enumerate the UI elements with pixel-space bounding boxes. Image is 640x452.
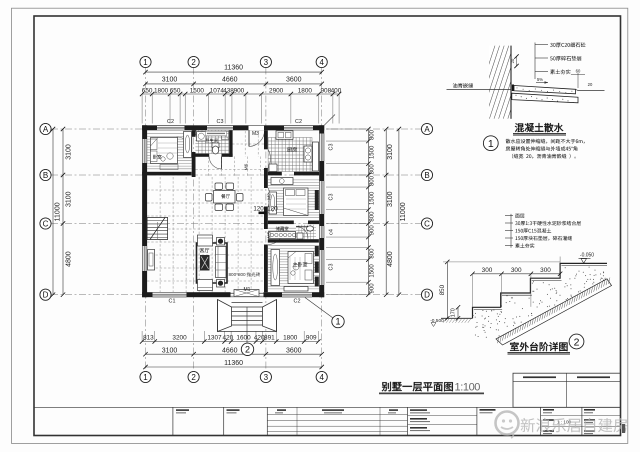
svg-text:4660: 4660 bbox=[222, 76, 238, 83]
svg-text:1: 1 bbox=[488, 138, 494, 150]
svg-text:1074: 1074 bbox=[210, 87, 225, 94]
svg-text:120: 120 bbox=[267, 206, 278, 213]
svg-text:800: 800 bbox=[370, 211, 376, 222]
svg-text:C: C bbox=[424, 219, 430, 228]
svg-text:A: A bbox=[424, 125, 430, 134]
svg-text:C2: C2 bbox=[295, 119, 302, 125]
svg-text:800*800: 800*800 bbox=[229, 272, 247, 277]
svg-text:120: 120 bbox=[253, 206, 264, 213]
svg-text:3: 3 bbox=[264, 373, 269, 382]
svg-text:909: 909 bbox=[306, 335, 317, 342]
svg-text:5%: 5% bbox=[537, 77, 543, 82]
svg-text:2900: 2900 bbox=[269, 87, 284, 94]
svg-text:1307: 1307 bbox=[207, 335, 222, 342]
svg-text:4800: 4800 bbox=[66, 251, 73, 267]
svg-text:M6: M6 bbox=[244, 163, 250, 170]
svg-text:C2: C2 bbox=[167, 119, 174, 125]
svg-text:-0.500: -0.500 bbox=[430, 318, 444, 324]
svg-text:3100: 3100 bbox=[66, 191, 73, 207]
svg-text:1600: 1600 bbox=[236, 335, 251, 342]
svg-text:900: 900 bbox=[370, 225, 376, 236]
svg-text:1800: 1800 bbox=[154, 87, 169, 94]
svg-text:3100: 3100 bbox=[162, 76, 178, 83]
svg-text:D: D bbox=[424, 291, 430, 300]
svg-text:1800: 1800 bbox=[298, 87, 313, 94]
svg-text:900: 900 bbox=[234, 87, 245, 94]
svg-text:891: 891 bbox=[264, 335, 275, 342]
svg-text:C1: C1 bbox=[169, 299, 176, 305]
svg-text:300: 300 bbox=[482, 267, 493, 274]
svg-text:3600: 3600 bbox=[286, 347, 302, 354]
svg-text:3100: 3100 bbox=[387, 191, 394, 207]
svg-text:1500: 1500 bbox=[370, 264, 376, 278]
svg-text:4800: 4800 bbox=[387, 251, 394, 267]
svg-text:60: 60 bbox=[576, 69, 581, 74]
svg-text:800: 800 bbox=[370, 248, 376, 259]
svg-text:M2: M2 bbox=[267, 193, 273, 200]
svg-text:300: 300 bbox=[511, 267, 522, 274]
svg-text:B: B bbox=[43, 171, 48, 180]
svg-text:20: 20 bbox=[588, 82, 593, 87]
svg-text:3100: 3100 bbox=[387, 144, 394, 160]
svg-text:1500: 1500 bbox=[190, 87, 205, 94]
svg-text:M1: M1 bbox=[244, 287, 251, 293]
svg-text:813: 813 bbox=[143, 335, 154, 342]
svg-text:3100: 3100 bbox=[162, 347, 178, 354]
svg-text:3200: 3200 bbox=[172, 335, 187, 342]
svg-text:1: 1 bbox=[143, 373, 148, 382]
svg-text:3: 3 bbox=[264, 58, 269, 67]
svg-text:420: 420 bbox=[223, 335, 234, 342]
svg-text:800: 800 bbox=[370, 164, 376, 175]
svg-text:C: C bbox=[43, 219, 49, 228]
svg-text:2: 2 bbox=[574, 336, 580, 348]
svg-text:M3: M3 bbox=[252, 131, 259, 137]
svg-text:11000: 11000 bbox=[400, 202, 407, 221]
svg-text:850: 850 bbox=[439, 284, 446, 295]
svg-text:11000: 11000 bbox=[55, 202, 62, 221]
svg-text:D: D bbox=[43, 291, 49, 300]
svg-text:170: 170 bbox=[451, 308, 457, 317]
svg-text:1500: 1500 bbox=[370, 145, 376, 159]
svg-text:1:100: 1:100 bbox=[455, 381, 481, 393]
svg-text:4: 4 bbox=[319, 373, 324, 382]
svg-text:1: 1 bbox=[335, 317, 340, 327]
svg-text:800: 800 bbox=[370, 129, 376, 140]
svg-text:800: 800 bbox=[370, 175, 376, 186]
svg-text:C3: C3 bbox=[217, 119, 224, 125]
svg-text:650: 650 bbox=[142, 87, 153, 94]
svg-text:4: 4 bbox=[319, 58, 324, 67]
svg-text:C3: C3 bbox=[329, 194, 335, 201]
svg-text:650: 650 bbox=[170, 87, 181, 94]
svg-text:1500: 1500 bbox=[370, 191, 376, 205]
svg-text:2: 2 bbox=[245, 345, 250, 355]
svg-text:3600: 3600 bbox=[286, 76, 302, 83]
svg-text:C3: C3 bbox=[329, 144, 335, 151]
svg-text:900: 900 bbox=[370, 283, 376, 294]
svg-text:2: 2 bbox=[191, 373, 196, 382]
svg-text:11360: 11360 bbox=[224, 360, 243, 367]
svg-text:C3: C3 bbox=[329, 264, 335, 271]
svg-text:2: 2 bbox=[191, 58, 196, 67]
svg-text:4660: 4660 bbox=[222, 347, 238, 354]
svg-text:c4: c4 bbox=[329, 229, 335, 235]
svg-text:-0.050: -0.050 bbox=[580, 253, 594, 259]
svg-text:3100: 3100 bbox=[66, 144, 73, 160]
svg-text:400: 400 bbox=[331, 87, 342, 94]
svg-text:20: 20 bbox=[510, 58, 515, 63]
svg-text:A: A bbox=[43, 125, 49, 134]
svg-text:1: 1 bbox=[143, 58, 148, 67]
svg-text:300: 300 bbox=[540, 267, 551, 274]
svg-text:B: B bbox=[424, 171, 429, 180]
svg-text:M4: M4 bbox=[193, 129, 199, 136]
svg-text:1800: 1800 bbox=[283, 335, 298, 342]
svg-text:C2: C2 bbox=[294, 299, 301, 305]
svg-text:M5: M5 bbox=[267, 231, 273, 238]
svg-text:11360: 11360 bbox=[224, 65, 243, 72]
